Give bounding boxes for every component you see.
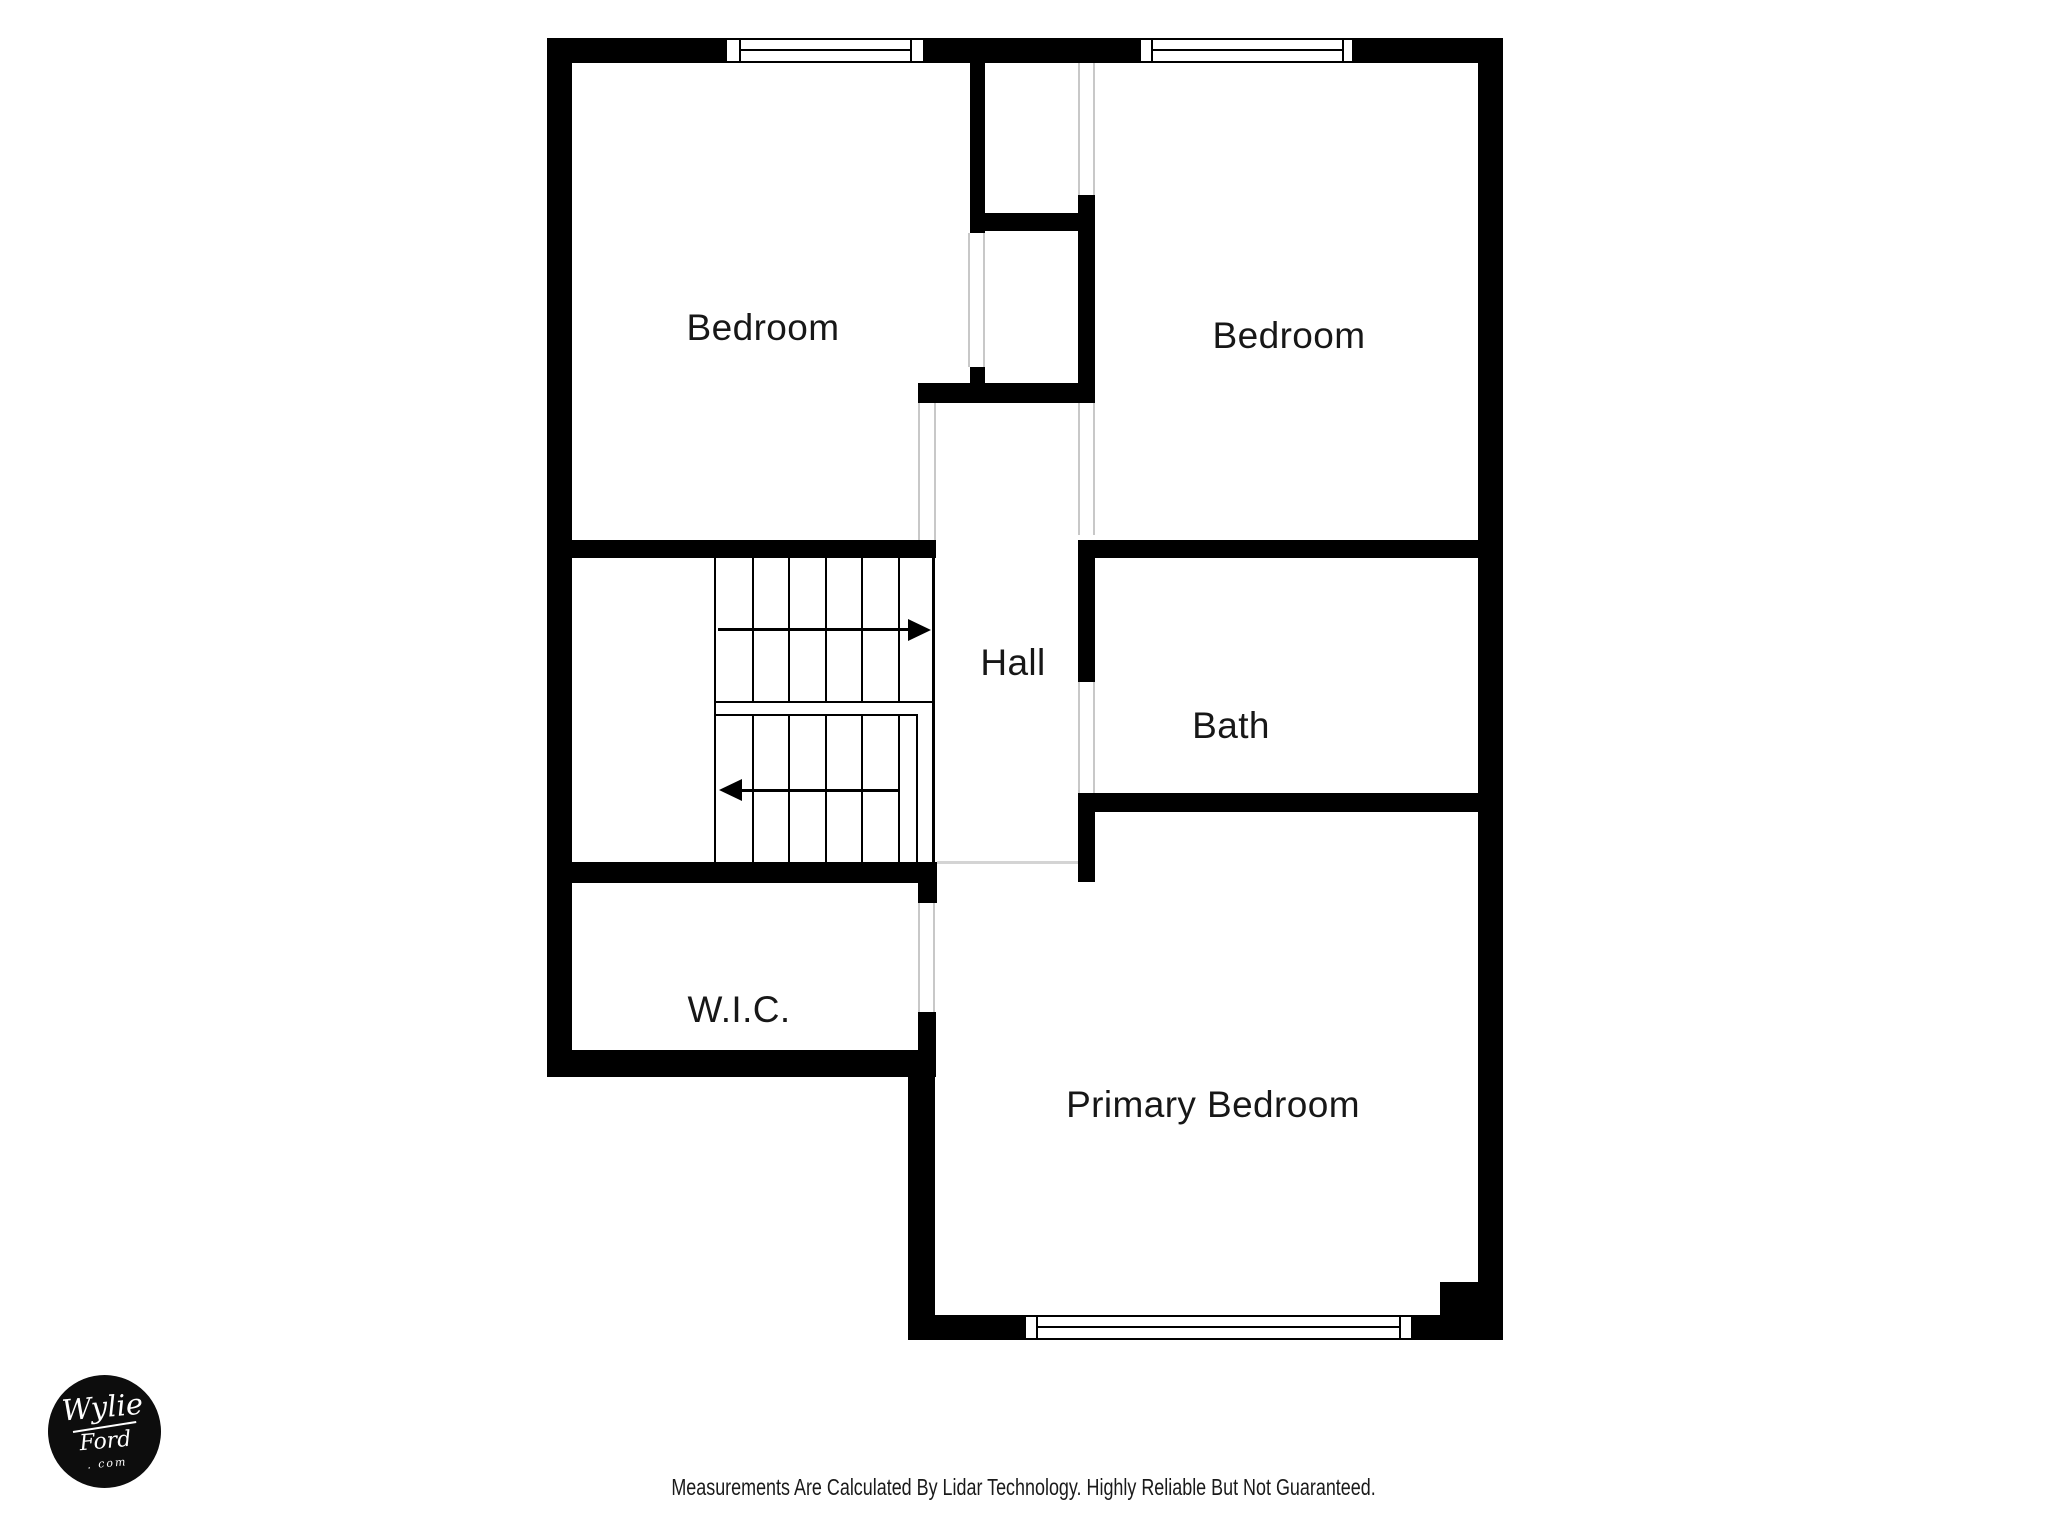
logo-line1: Wylie: [61, 1390, 144, 1426]
wall-outer-right: [1478, 38, 1503, 1282]
room-label-bath: Bath: [1192, 705, 1270, 747]
walls: [547, 38, 1503, 1340]
wall-stairs-wic-divider: [547, 862, 937, 883]
window-top-left: [726, 39, 924, 62]
stairs-down-arrow-icon: [719, 779, 898, 801]
door-jamb: [1078, 403, 1080, 535]
wall-bath-bottom: [1095, 793, 1478, 812]
stairs-hall-edge: [932, 558, 935, 863]
wall-primary-bedroom-left: [908, 1052, 935, 1340]
wall-bath-left-upper: [1078, 540, 1095, 682]
wall-outer-top-left-segment: [547, 38, 726, 63]
logo-line2: Ford: [79, 1429, 133, 1455]
measurement-disclaimer-text: Measurements Are Calculated By Lidar Tec…: [672, 1474, 1376, 1501]
wall-vestibule-left: [970, 63, 985, 233]
wall-bottom-right-segment: [1412, 1315, 1503, 1340]
stairs-lower-flight-treads: [752, 714, 900, 863]
stairs-lower-flight-right-edge: [916, 714, 918, 863]
door-jamb: [983, 233, 985, 367]
logo-line3: . com: [87, 1455, 128, 1471]
room-label-wic: W.I.C.: [687, 989, 790, 1031]
stairs-upper-flight-bottom-edge: [714, 701, 934, 703]
door-jamb: [918, 403, 920, 540]
door-jamb: [1093, 403, 1095, 535]
stairs-lower-flight-top-edge: [714, 714, 918, 716]
room-separator-line: [937, 861, 1078, 864]
room-label-bedroom-right: Bedroom: [1213, 315, 1366, 357]
wall-hall-top: [918, 383, 1095, 403]
windows: [726, 39, 1412, 1339]
stairs-left-edge: [714, 558, 716, 863]
wall-closet-right: [1078, 195, 1095, 403]
wall-bath-left-lower: [1078, 793, 1095, 882]
room-label-hall: Hall: [980, 642, 1045, 684]
wall-wic-bottom: [547, 1050, 936, 1077]
wall-bedroom-stairs-divider: [547, 540, 936, 558]
wall-stairs-wic-divider-cap: [918, 862, 937, 903]
room-label-bedroom-left: Bedroom: [687, 307, 840, 349]
window-bottom: [1025, 1316, 1412, 1339]
window-top-right: [1140, 39, 1353, 62]
room-label-primary-bedroom: Primary Bedroom: [1066, 1084, 1360, 1126]
door-openings: [918, 63, 1095, 1012]
wall-bath-top: [1078, 540, 1478, 558]
wall-closet-jamb-stub: [970, 367, 985, 383]
door-jamb: [1078, 63, 1080, 195]
door-jamb: [1093, 63, 1095, 195]
door-jamb: [934, 403, 936, 540]
wall-outer-top-middle-segment: [924, 38, 1140, 63]
door-jamb: [918, 903, 920, 1012]
wall-wic-door-stub: [918, 1012, 936, 1052]
door-jamb: [1093, 682, 1095, 793]
floor-plan-page: Bedroom Bedroom Hall Bath W.I.C. Primary…: [0, 0, 2048, 1536]
door-jamb: [933, 903, 935, 1012]
floor-plan-drawing: [0, 0, 2048, 1536]
stairs: [714, 558, 935, 863]
door-jamb: [1078, 682, 1080, 793]
door-jamb: [968, 233, 970, 367]
measurement-disclaimer: Measurements Are Calculated By Lidar Tec…: [0, 1474, 2048, 1501]
